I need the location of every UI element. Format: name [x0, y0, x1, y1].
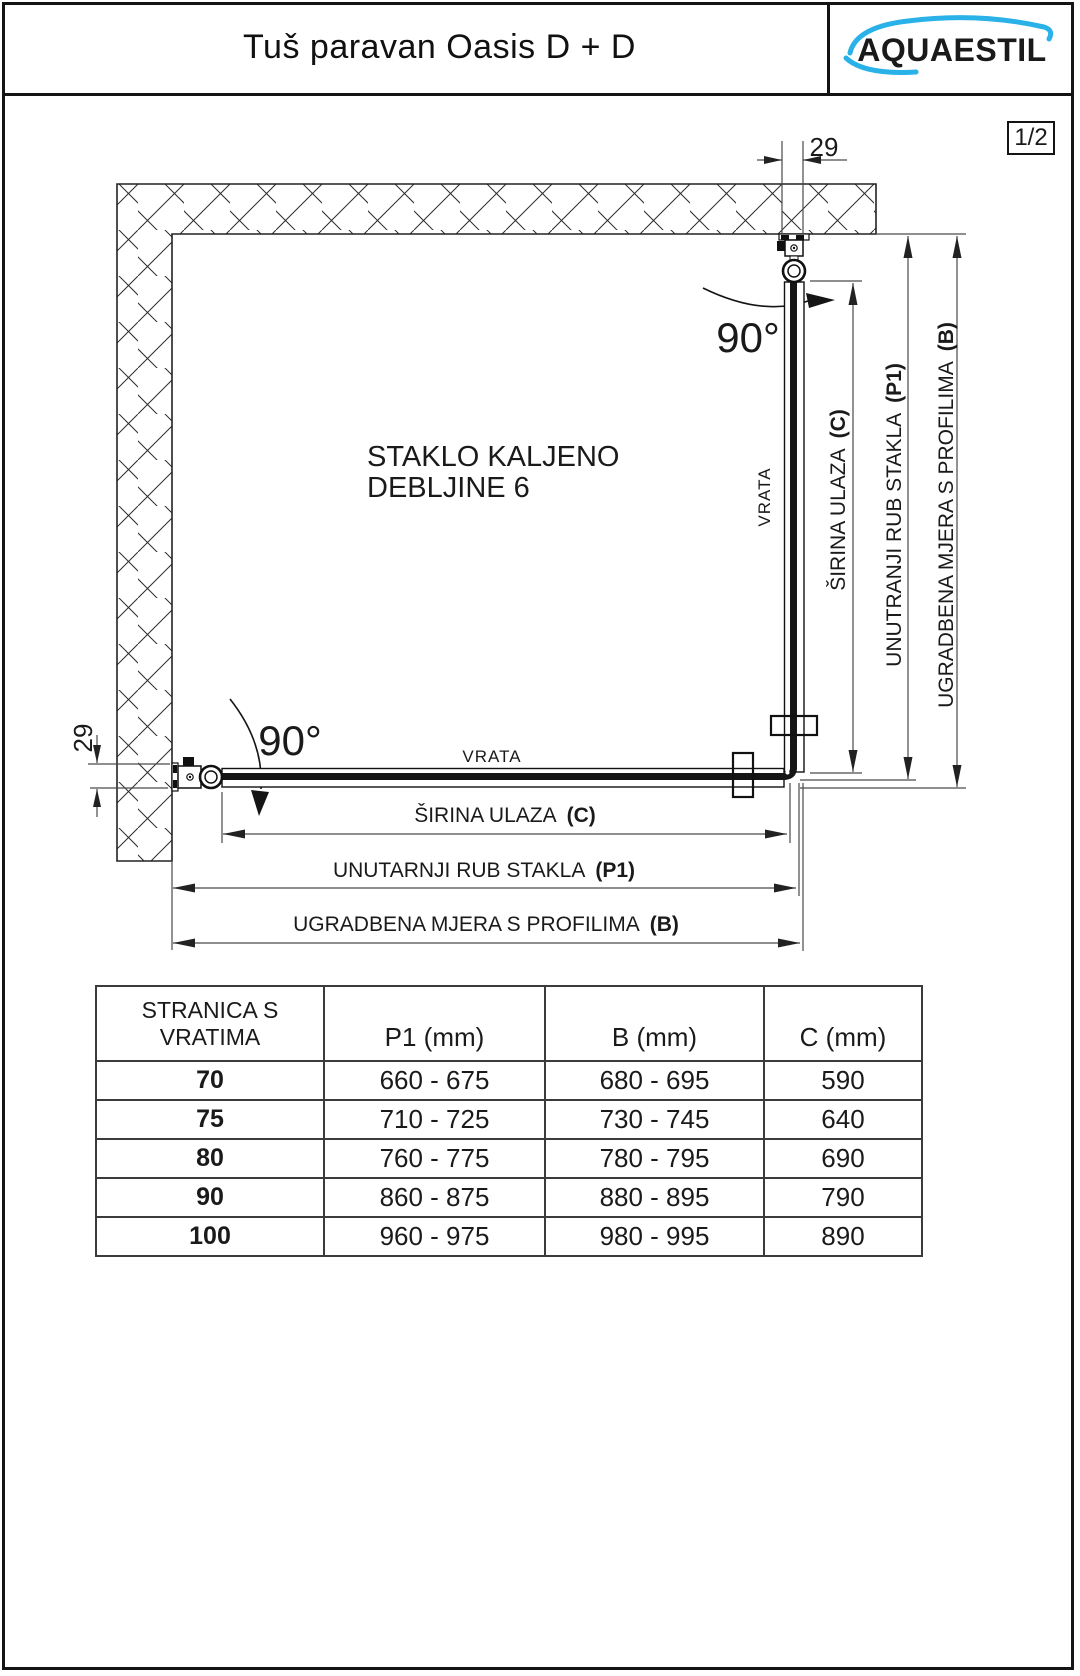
dim-bottom-entry-width-code: (C)	[567, 804, 596, 827]
hinge-top	[777, 234, 809, 282]
cell-size: 70	[96, 1061, 324, 1100]
dim-right-profile-code: (B)	[935, 322, 958, 351]
dim-right-entry-width-code: (C)	[827, 409, 850, 438]
col-header-c: C (mm)	[764, 986, 922, 1061]
cell-c: 890	[764, 1217, 922, 1256]
dim-bottom-profile-text: UGRADBENA MJERA S PROFILIMA	[293, 913, 640, 936]
dim-bottom-profile-code: (B)	[650, 913, 679, 936]
angle-top-label: 90°	[716, 314, 780, 361]
logo-text: AQUAESTIL	[857, 32, 1046, 68]
col-header-stranica-line1: STRANICA S	[97, 997, 323, 1024]
dim-bottom-glass-edge-label: UNUTARNJI RUB STAKLA(P1)	[333, 859, 635, 882]
cell-c: 640	[764, 1100, 922, 1139]
offset-left-label: 29	[68, 724, 98, 753]
cell-b: 730 - 745	[545, 1100, 764, 1139]
cell-b: 680 - 695	[545, 1061, 764, 1100]
cell-size: 90	[96, 1178, 324, 1217]
cell-p1: 710 - 725	[324, 1100, 545, 1139]
logo-cell: AQUAESTIL	[830, 2, 1074, 93]
table-row: 90 860 - 875 880 - 895 790	[96, 1178, 922, 1217]
table-row: 70 660 - 675 680 - 695 590	[96, 1061, 922, 1100]
title-cell: Tuš paravan Oasis D + D	[2, 2, 830, 93]
dim-bottom-glass-edge-text: UNUTARNJI RUB STAKLA	[333, 859, 585, 882]
dim-right-profile-label: UGRADBENA MJERA S PROFILIMA(B)	[935, 322, 958, 708]
cell-p1: 660 - 675	[324, 1061, 545, 1100]
cell-b: 980 - 995	[545, 1217, 764, 1256]
cell-b: 880 - 895	[545, 1178, 764, 1217]
dimension-table: STRANICA S VRATIMA P1 (mm) B (mm) C (mm)…	[95, 985, 923, 1257]
dim-right-glass-edge-code: (P1)	[883, 363, 906, 403]
col-header-p1: P1 (mm)	[324, 986, 545, 1061]
dim-bottom-profile-label: UGRADBENA MJERA S PROFILIMA(B)	[293, 913, 679, 936]
cell-c: 790	[764, 1178, 922, 1217]
table-row: 75 710 - 725 730 - 745 640	[96, 1100, 922, 1139]
col-header-stranica: STRANICA S VRATIMA	[96, 986, 324, 1061]
header: Tuš paravan Oasis D + D AQUAESTIL	[2, 2, 1074, 96]
cell-c: 590	[764, 1061, 922, 1100]
table-header-row: STRANICA S VRATIMA P1 (mm) B (mm) C (mm)	[96, 986, 922, 1061]
aquaestil-logo: AQUAESTIL	[836, 11, 1068, 85]
glass-note-line2: DEBLJINE 6	[367, 472, 530, 504]
door-label-vertical: VRATA	[755, 467, 774, 526]
dim-bottom-entry-width-label: ŠIRINA ULAZA(C)	[414, 804, 596, 827]
cell-size: 75	[96, 1100, 324, 1139]
dim-bottom-glass-edge-code: (P1)	[595, 859, 635, 882]
dim-right-entry-width-text: ŠIRINA ULAZA	[827, 448, 850, 590]
cell-b: 780 - 795	[545, 1139, 764, 1178]
col-header-stranica-line2: VRATIMA	[97, 1024, 323, 1051]
angle-bottom-label: 90°	[258, 717, 322, 764]
dim-right-glass-edge-text: UNUTRANJI RUB STAKLA	[883, 413, 906, 667]
cell-p1: 760 - 775	[324, 1139, 545, 1178]
cell-p1: 960 - 975	[324, 1217, 545, 1256]
cell-p1: 860 - 875	[324, 1178, 545, 1217]
offset-top-label: 29	[810, 132, 839, 162]
cell-size: 100	[96, 1217, 324, 1256]
hinge-left	[172, 757, 222, 791]
dim-right-entry-width-label: ŠIRINA ULAZA(C)	[827, 409, 850, 591]
table-row: 100 960 - 975 980 - 995 890	[96, 1217, 922, 1256]
cell-size: 80	[96, 1139, 324, 1178]
door-label-horizontal: VRATA	[462, 747, 521, 766]
cell-c: 690	[764, 1139, 922, 1178]
dim-right-profile-text: UGRADBENA MJERA S PROFILIMA	[935, 361, 958, 708]
technical-drawing: STAKLO KALJENO DEBLJINE 6 90° 90° 29 29 …	[0, 95, 1080, 960]
dim-bottom-entry-width-text: ŠIRINA ULAZA	[414, 804, 556, 827]
glass-note-line1: STAKLO KALJENO	[367, 441, 620, 473]
table-row: 80 760 - 775 780 - 795 690	[96, 1139, 922, 1178]
col-header-b: B (mm)	[545, 986, 764, 1061]
dim-right-glass-edge-label: UNUTRANJI RUB STAKLA(P1)	[883, 363, 906, 667]
page-title: Tuš paravan Oasis D + D	[193, 28, 636, 67]
